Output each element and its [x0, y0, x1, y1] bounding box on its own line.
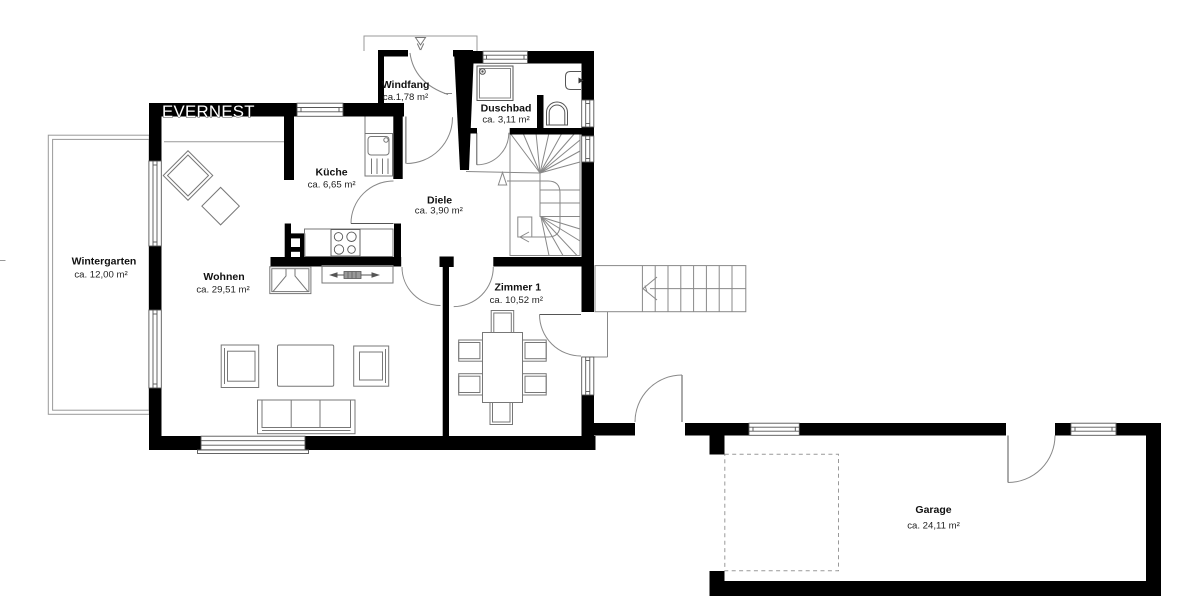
- svg-text:Wintergarten: Wintergarten: [72, 256, 137, 268]
- svg-text:ca. 10,52 m²: ca. 10,52 m²: [490, 295, 544, 306]
- svg-text:Küche: Küche: [316, 167, 348, 179]
- svg-text:Garage: Garage: [915, 504, 951, 516]
- svg-text:Windfang: Windfang: [382, 79, 430, 91]
- svg-text:ca. 3,90 m²: ca. 3,90 m²: [415, 206, 464, 217]
- svg-text:EVERNEST: EVERNEST: [162, 102, 255, 121]
- svg-text:ca. 6,65 m²: ca. 6,65 m²: [308, 180, 357, 191]
- svg-text:ca. 3,11 m²: ca. 3,11 m²: [482, 115, 530, 126]
- svg-text:ca. 24,11 m²: ca. 24,11 m²: [907, 521, 960, 532]
- svg-text:Zimmer 1: Zimmer 1: [494, 282, 541, 294]
- svg-text:Wohnen: Wohnen: [203, 271, 244, 283]
- svg-text:ca.1,78 m²: ca.1,78 m²: [383, 92, 429, 103]
- svg-text:ca. 12,00 m²: ca. 12,00 m²: [74, 270, 128, 281]
- svg-text:ca. 29,51 m²: ca. 29,51 m²: [196, 285, 250, 296]
- svg-text:Duschbad: Duschbad: [481, 103, 532, 115]
